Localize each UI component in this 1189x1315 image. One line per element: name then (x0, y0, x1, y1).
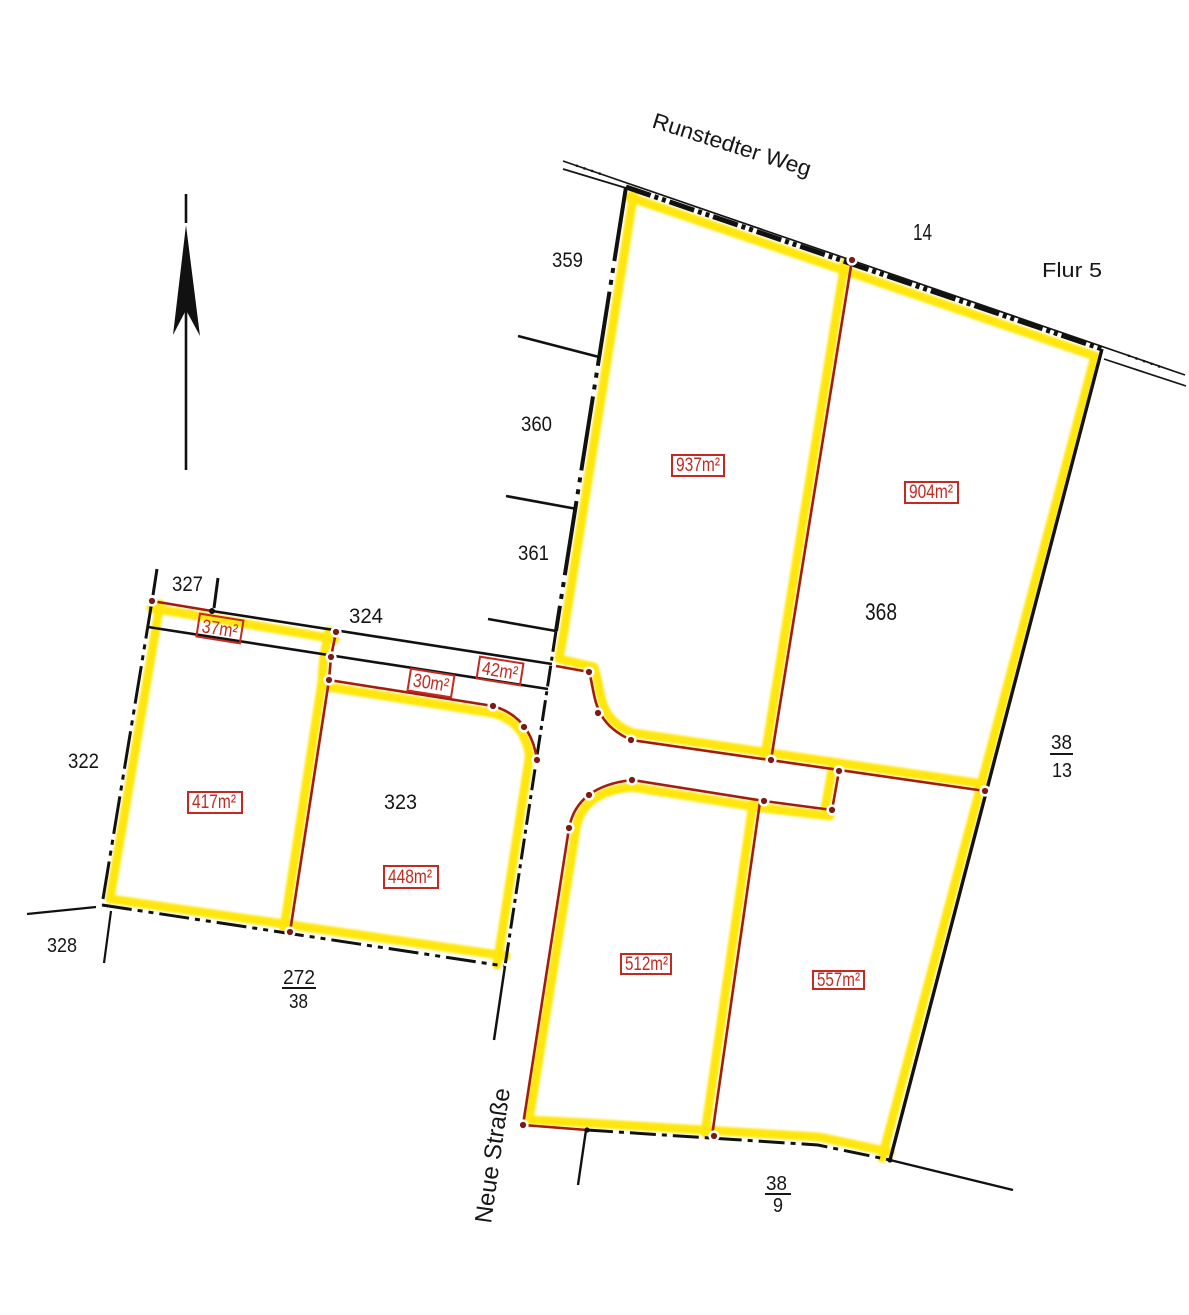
svg-text:448m²: 448m² (388, 867, 432, 888)
svg-text:38: 38 (1051, 732, 1072, 754)
svg-text:Runstedter Weg: Runstedter Weg (649, 108, 814, 181)
svg-text:557m²: 557m² (817, 970, 860, 991)
svg-text:417m²: 417m² (192, 792, 236, 813)
svg-text:904m²: 904m² (909, 482, 953, 503)
svg-text:272: 272 (283, 967, 315, 989)
svg-text:360: 360 (521, 413, 552, 436)
svg-text:38: 38 (766, 1173, 787, 1195)
svg-text:324: 324 (349, 605, 383, 628)
svg-text:359: 359 (552, 249, 583, 272)
svg-text:14: 14 (913, 219, 932, 245)
svg-text:38: 38 (289, 991, 308, 1013)
svg-text:9: 9 (773, 1195, 783, 1217)
svg-text:328: 328 (47, 935, 77, 957)
svg-text:327: 327 (172, 573, 203, 596)
svg-text:322: 322 (68, 750, 99, 773)
svg-text:323: 323 (384, 791, 417, 814)
svg-text:Flur 5: Flur 5 (1042, 260, 1102, 282)
svg-text:368: 368 (865, 599, 897, 626)
svg-text:937m²: 937m² (676, 455, 720, 476)
svg-text:Neue Straße: Neue Straße (470, 1086, 516, 1224)
svg-text:361: 361 (518, 542, 549, 565)
svg-text:512m²: 512m² (625, 954, 668, 975)
svg-text:13: 13 (1052, 760, 1072, 782)
